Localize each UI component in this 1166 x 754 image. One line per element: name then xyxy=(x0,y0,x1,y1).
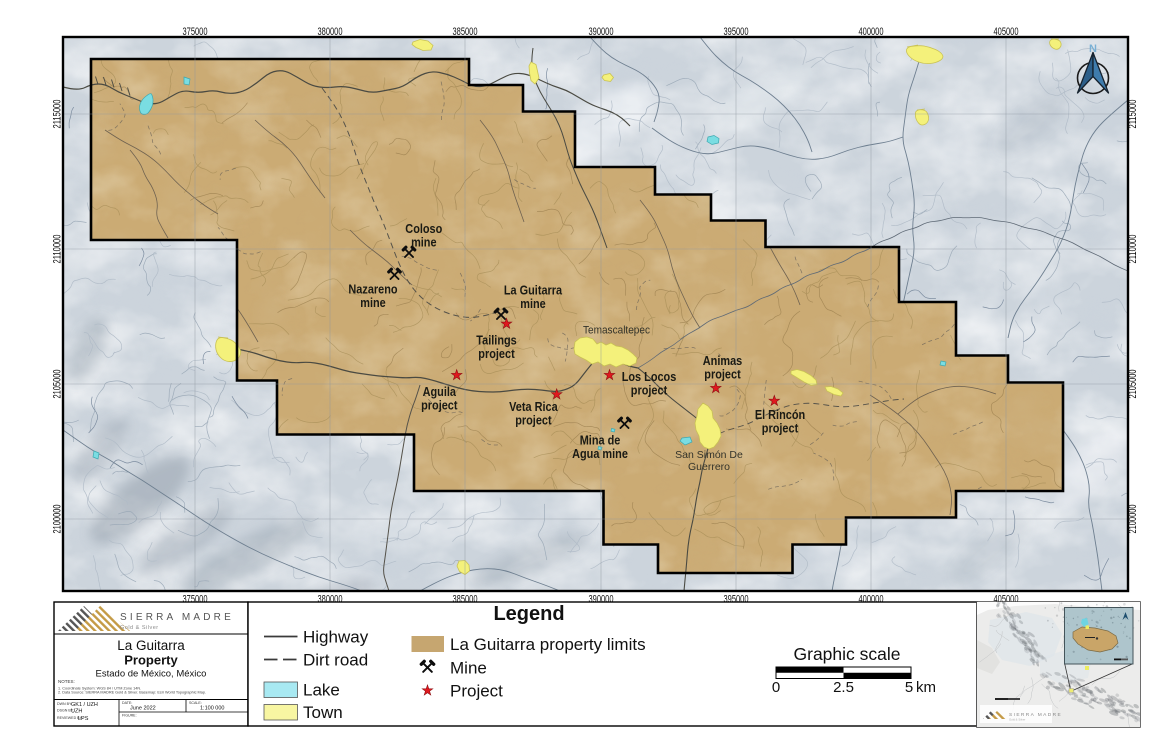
svg-text:0: 0 xyxy=(772,679,780,696)
svg-text:2.5: 2.5 xyxy=(833,679,854,696)
svg-text:N: N xyxy=(1089,43,1097,55)
svg-text:Dirt road: Dirt road xyxy=(303,651,368,670)
svg-text:Mine: Mine xyxy=(450,659,487,678)
svg-text:UZH: UZH xyxy=(71,709,82,715)
svg-text:Lake: Lake xyxy=(303,681,340,700)
svg-text:Tailingsproject: Tailingsproject xyxy=(476,333,517,362)
svg-text:Graphic scale: Graphic scale xyxy=(794,644,901,664)
svg-text:5: 5 xyxy=(905,679,913,696)
svg-text:Project: Project xyxy=(450,682,503,701)
svg-text:LPS: LPS xyxy=(78,716,89,722)
svg-text:SCALE:: SCALE: xyxy=(189,701,202,705)
svg-text:Guerrero: Guerrero xyxy=(688,461,730,473)
svg-text:2100000: 2100000 xyxy=(1127,505,1139,534)
svg-text:La Guitarra property limits: La Guitarra property limits xyxy=(450,635,646,654)
svg-text:390000: 390000 xyxy=(589,26,614,38)
svg-text:Veta Ricaproject: Veta Ricaproject xyxy=(509,399,558,428)
svg-text:2115000: 2115000 xyxy=(1127,100,1139,129)
svg-text:Estado de México, México: Estado de México, México xyxy=(96,669,207,680)
svg-text:Aguilaproject: Aguilaproject xyxy=(421,384,457,413)
svg-text:NOTES:: NOTES: xyxy=(58,679,75,684)
svg-text:Highway: Highway xyxy=(303,628,369,647)
svg-text:El Rincónproject: El Rincónproject xyxy=(755,407,805,436)
svg-text:380000: 380000 xyxy=(318,26,343,38)
svg-text:DATE:: DATE: xyxy=(122,701,132,705)
svg-text:GK1 / UZH: GK1 / UZH xyxy=(71,702,98,708)
svg-text:Gold & Silver: Gold & Silver xyxy=(120,625,159,631)
svg-text:San Simón De: San Simón De xyxy=(675,449,743,461)
svg-text:SIERRA MADRE: SIERRA MADRE xyxy=(120,612,234,623)
svg-text:Mina deAgua mine: Mina deAgua mine xyxy=(572,433,628,462)
svg-text:2. Data Source: SIERRA MADRE G: 2. Data Source: SIERRA MADRE Gold & Silv… xyxy=(58,691,206,695)
svg-text:2110000: 2110000 xyxy=(52,235,64,264)
svg-text:km: km xyxy=(916,679,936,696)
svg-text:385000: 385000 xyxy=(453,26,478,38)
svg-text:Animasproject: Animasproject xyxy=(703,353,743,382)
svg-text:Gold & Silver: Gold & Silver xyxy=(1009,718,1025,722)
svg-text:Temascaltepec: Temascaltepec xyxy=(583,325,650,337)
svg-text:June 2022: June 2022 xyxy=(130,706,156,712)
svg-text:375000: 375000 xyxy=(183,26,208,38)
svg-text:FIGURE:: FIGURE: xyxy=(122,714,137,718)
svg-text:1:100 000: 1:100 000 xyxy=(200,706,224,712)
svg-text:395000: 395000 xyxy=(724,26,749,38)
svg-text:Property: Property xyxy=(124,653,178,668)
svg-text:2105000: 2105000 xyxy=(1127,370,1139,399)
svg-text:2100000: 2100000 xyxy=(52,505,64,534)
svg-text:400000: 400000 xyxy=(859,26,884,38)
svg-text:Town: Town xyxy=(303,703,343,722)
svg-text:2105000: 2105000 xyxy=(52,370,64,399)
svg-text:405000: 405000 xyxy=(994,26,1019,38)
svg-text:2110000: 2110000 xyxy=(1127,235,1139,264)
svg-text:2115000: 2115000 xyxy=(52,100,64,129)
svg-text:Legend: Legend xyxy=(493,603,564,625)
svg-text:La Guitarra: La Guitarra xyxy=(117,638,185,653)
svg-text:DWN BY:: DWN BY: xyxy=(57,702,72,706)
